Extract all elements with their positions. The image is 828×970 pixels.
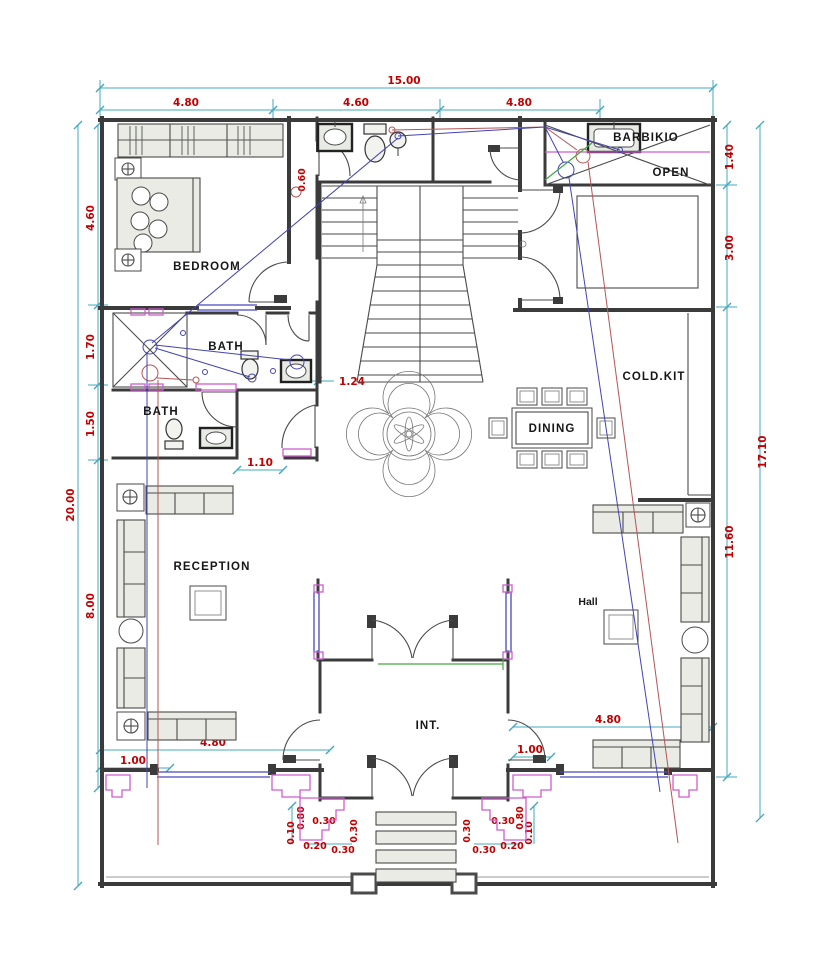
label-bath-lower: BATH [143,406,179,418]
dim-top-seg-1: 4.80 [173,97,199,109]
porch-steps [376,812,456,882]
dim-top-seg-2: 4.60 [343,97,369,109]
dim-ent-l-3: 0.30 [312,816,336,827]
label-open-area: OPEN [653,167,690,179]
floor-plan-svg: 15.00 4.80 4.60 4.80 20.00 4.60 1.70 1.5… [0,0,828,970]
dim-right-seg-1: 1.40 [724,144,736,170]
dim-right-seg-3: 11.60 [724,525,736,558]
label-barbecue: BARBIKIO [613,132,679,144]
dim-ent-l-5: 0.20 [303,841,327,852]
dim-ent-r-1: 0.30 [462,819,473,843]
dim-bottom-left-inset: 1.00 [120,755,146,767]
label-cold-kitchen: COLD.KIT [622,371,685,383]
dim-bottom-right-width: 4.80 [595,714,621,726]
staircase [322,186,518,382]
label-reception: RECEPTION [174,561,251,573]
dim-ent-r-4: 0.30 [472,845,496,856]
dim-ent-l-2: 0.80 [296,806,307,830]
label-dining: DINING [529,423,576,435]
label-hall: Hall [578,596,597,608]
label-entrance: INT. [416,720,441,732]
dim-ent-r-2: 0.30 [491,816,515,827]
dim-overall-height-right: 17.10 [757,435,769,468]
dim-right-seg-2: 3.00 [724,235,736,261]
dim-left-seg-3: 1.50 [85,411,97,437]
label-bedroom: BEDROOM [173,261,241,273]
floor-plan-page: 15.00 4.80 4.60 4.80 20.00 4.60 1.70 1.5… [0,0,828,970]
dim-ent-l-4: 0.30 [349,819,360,843]
dim-ent-l-6: 0.30 [331,845,355,856]
dim-overall-height-left: 20.00 [65,488,77,521]
dim-overall-width: 15.00 [387,75,420,87]
bedroom-furniture [115,124,283,271]
dim-left-seg-1: 4.60 [85,205,97,231]
dim-left-seg-2: 1.70 [85,334,97,360]
dim-ent-r-3: 0.20 [500,841,524,852]
label-bath-upper: BATH [208,341,244,353]
windows [157,305,668,777]
dim-left-seg-4: 8.00 [85,593,97,619]
hall-furniture [593,503,710,768]
dim-bottom-right-inset: 1.00 [517,744,543,756]
floor-medallion [346,371,471,496]
dim-top-seg-3: 4.80 [506,97,532,109]
dim-bath-passage: 1.10 [247,457,273,469]
reception-furniture [117,484,236,740]
